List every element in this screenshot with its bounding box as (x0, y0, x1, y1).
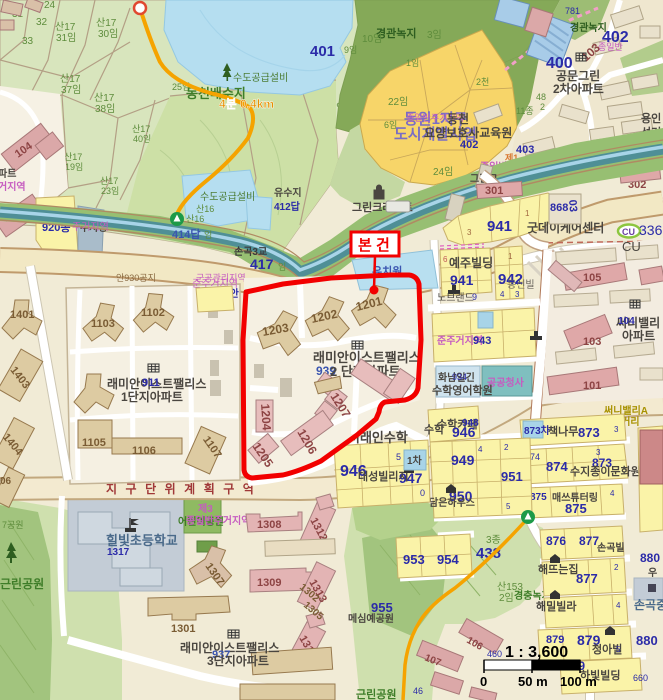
svg-text:산17: 산17 (132, 124, 150, 134)
svg-text:33: 33 (22, 36, 34, 47)
svg-text:4: 4 (500, 290, 505, 299)
svg-text:3: 3 (515, 290, 520, 299)
svg-text:2임: 2임 (499, 591, 514, 604)
svg-text:1 : 3,600: 1 : 3,600 (505, 644, 568, 661)
svg-text:30임: 30임 (98, 27, 118, 40)
svg-text:수도공급설비: 수도공급설비 (233, 72, 288, 84)
svg-text:23임: 23임 (101, 185, 119, 196)
svg-text:105: 105 (583, 272, 601, 284)
svg-text:4: 4 (610, 489, 615, 498)
svg-text:1단지아파트: 1단지아파트 (121, 389, 183, 404)
svg-text:1301: 1301 (171, 623, 195, 635)
svg-text:책나무: 책나무 (548, 424, 578, 438)
svg-text:요양보호사교육원: 요양보호사교육원 (424, 125, 512, 140)
svg-text:용인: 용인 (641, 111, 661, 125)
svg-text:6: 6 (443, 255, 448, 264)
svg-text:힐빛초등학교: 힐빛초등학교 (106, 533, 178, 548)
svg-text:3: 3 (467, 228, 472, 237)
svg-text:1317: 1317 (107, 547, 130, 558)
svg-text:예주빌딩: 예주빌딩 (449, 255, 493, 270)
svg-text:1차: 1차 (407, 454, 423, 467)
svg-text:0: 0 (480, 674, 487, 689)
svg-text:301: 301 (485, 185, 503, 197)
svg-text:4분 0.4km: 4분 0.4km (219, 97, 274, 111)
svg-text:산17: 산17 (64, 152, 82, 162)
svg-text:336: 336 (639, 222, 663, 238)
svg-text:22임: 22임 (388, 95, 408, 108)
svg-text:5: 5 (506, 502, 511, 511)
svg-text:880: 880 (640, 551, 660, 565)
svg-text:대성빌리지: 대성빌리지 (358, 469, 409, 483)
svg-text:0: 0 (420, 488, 425, 498)
svg-text:50 m: 50 m (518, 674, 548, 689)
svg-text:873차: 873차 (524, 424, 551, 437)
svg-text:1: 1 (508, 252, 513, 261)
svg-text:38임: 38임 (95, 102, 115, 115)
svg-text:953: 953 (403, 552, 425, 567)
svg-text:781: 781 (565, 6, 580, 16)
svg-text:9임: 9임 (344, 44, 357, 55)
svg-text:31임: 31임 (56, 31, 76, 44)
svg-text:03: 03 (566, 199, 579, 212)
svg-text:아파트: 아파트 (622, 328, 655, 343)
svg-text:1309: 1309 (257, 577, 281, 589)
svg-text:종일반: 종일반 (598, 42, 623, 52)
svg-text:874: 874 (546, 459, 568, 474)
svg-text:10임: 10임 (362, 32, 382, 45)
svg-text:19임: 19임 (65, 161, 83, 172)
svg-text:1308: 1308 (257, 519, 281, 531)
svg-text:40임: 40임 (133, 133, 151, 144)
svg-text:100 m: 100 m (560, 674, 597, 689)
svg-text:06: 06 (0, 476, 12, 487)
svg-text:CU: CU (622, 227, 635, 237)
svg-text:산17: 산17 (96, 17, 117, 29)
svg-text:946: 946 (452, 424, 476, 440)
svg-text:주거지역: 주거지역 (72, 221, 109, 233)
svg-text:산17: 산17 (100, 176, 118, 186)
svg-text:1106: 1106 (132, 445, 156, 457)
svg-text:노브랜드: 노브랜드 (437, 292, 474, 304)
svg-text:파트: 파트 (0, 167, 16, 180)
svg-text:949: 949 (451, 452, 475, 468)
svg-text:산17: 산17 (94, 92, 115, 104)
svg-text:412답: 412답 (274, 201, 301, 213)
svg-text:수학영어학원: 수학영어학원 (432, 383, 493, 397)
svg-text:산16: 산16 (196, 204, 214, 214)
svg-text:수학: 수학 (424, 422, 444, 436)
svg-text:911: 911 (142, 377, 160, 389)
svg-text:104: 104 (618, 316, 635, 327)
svg-text:해뜨는집: 해뜨는집 (538, 562, 578, 576)
svg-text:955: 955 (371, 600, 393, 615)
svg-text:403: 403 (516, 144, 534, 156)
svg-text:2: 2 (504, 443, 509, 452)
svg-text:근린공원: 근린공원 (356, 687, 396, 700)
svg-text:103: 103 (583, 336, 601, 348)
svg-text:3단지아파트: 3단지아파트 (207, 653, 269, 668)
svg-text:임: 임 (278, 261, 286, 272)
svg-text:동신빌: 동신빌 (507, 279, 535, 291)
svg-text:7공원: 7공원 (2, 520, 24, 530)
svg-text:24임: 24임 (433, 165, 453, 178)
svg-text:5: 5 (616, 645, 621, 654)
svg-text:동천: 동천 (447, 111, 469, 126)
svg-text:우: 우 (648, 567, 657, 579)
svg-text:868: 868 (550, 202, 568, 214)
svg-text:24: 24 (44, 0, 56, 11)
svg-text:군공관리지역: 군공관리지역 (196, 273, 246, 283)
svg-text:안930공지: 안930공지 (116, 273, 156, 283)
svg-text:유수지: 유수지 (274, 186, 302, 199)
svg-text:9: 9 (472, 292, 477, 302)
svg-text:종일반주거지역: 종일반주거지역 (186, 514, 250, 527)
svg-text:산16: 산16 (186, 214, 204, 224)
svg-text:1103: 1103 (91, 318, 115, 330)
svg-text:2차아파트: 2차아파트 (553, 81, 604, 96)
svg-text:2: 2 (540, 102, 545, 112)
svg-text:경관녹지: 경관녹지 (570, 21, 607, 34)
svg-text:875: 875 (530, 492, 547, 503)
svg-text:1102: 1102 (141, 307, 165, 319)
svg-text:메심예공원: 메심예공원 (348, 612, 394, 625)
svg-text:손곡중: 손곡중 (634, 598, 663, 612)
svg-text:1105: 1105 (82, 437, 106, 449)
svg-text:1: 1 (525, 209, 530, 218)
svg-text:거지역: 거지역 (0, 180, 26, 193)
svg-text:3임: 3임 (427, 28, 442, 41)
svg-text:제3: 제3 (198, 502, 213, 515)
svg-text:5: 5 (396, 452, 401, 462)
svg-text:880: 880 (636, 633, 658, 648)
svg-text:954: 954 (437, 552, 459, 567)
svg-text:손곡빌: 손곡빌 (597, 541, 625, 554)
svg-text:32: 32 (36, 17, 48, 28)
svg-text:934: 934 (452, 372, 467, 382)
svg-text:1401: 1401 (10, 309, 34, 321)
svg-text:951: 951 (501, 469, 523, 484)
svg-text:941: 941 (487, 218, 512, 235)
svg-text:48: 48 (536, 92, 546, 102)
svg-text:근린공원: 근린공원 (0, 576, 44, 591)
svg-text:임: 임 (204, 229, 212, 240)
svg-text:401: 401 (310, 43, 335, 60)
svg-text:1임: 1임 (406, 57, 419, 68)
svg-text:2: 2 (614, 563, 619, 572)
svg-text:876: 876 (546, 534, 566, 548)
svg-text:101: 101 (583, 380, 601, 392)
svg-text:수지종이문화원: 수지종이문화원 (570, 464, 641, 478)
svg-text:본 건: 본 건 (358, 237, 390, 254)
svg-text:CU: CU (622, 239, 641, 254)
svg-text:4: 4 (616, 601, 621, 610)
svg-text:수도공급설비: 수도공급설비 (200, 191, 255, 203)
svg-text:산17: 산17 (55, 21, 76, 33)
svg-text:3: 3 (614, 425, 619, 434)
svg-text:943: 943 (473, 335, 491, 347)
svg-text:담은하우스: 담은하우스 (429, 496, 475, 509)
svg-text:2천: 2천 (476, 77, 489, 87)
svg-text:877: 877 (576, 571, 598, 586)
svg-text:11종: 11종 (516, 106, 534, 116)
svg-text:875: 875 (565, 501, 587, 516)
svg-text:460: 460 (487, 649, 502, 659)
svg-text:660: 660 (633, 673, 648, 683)
svg-text:3: 3 (596, 448, 601, 457)
svg-text:해밀빌라: 해밀빌라 (536, 599, 577, 613)
svg-text:4: 4 (478, 445, 483, 454)
svg-text:37임: 37임 (61, 83, 81, 96)
svg-text:산17: 산17 (60, 73, 81, 85)
svg-text:1204: 1204 (258, 403, 274, 431)
svg-text:873: 873 (578, 425, 600, 440)
svg-text:46: 46 (413, 686, 423, 696)
svg-text:공문그린: 공문그린 (556, 68, 600, 83)
svg-text:414답: 414답 (172, 227, 200, 241)
